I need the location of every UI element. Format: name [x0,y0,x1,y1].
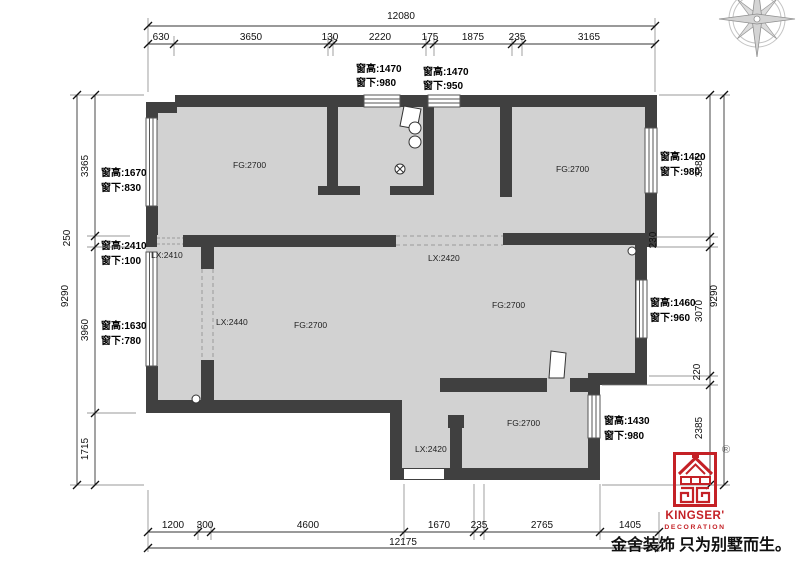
dim-seg: 130 [322,32,339,43]
window-label: 窗高:1670 [101,166,147,179]
room-height-label: FG:2700 [492,300,525,310]
window-right-3 [588,395,600,438]
dim-seg: 300 [197,520,214,531]
dimension-left: 9290 3365 250 3960 1715 [60,91,144,489]
window-label: 窗高:1430 [604,414,650,427]
window-label: 窗下:780 [101,334,141,347]
wall-opening-beam [157,235,183,247]
dim-seg: 250 [62,229,73,246]
dim-seg: 3070 [694,299,705,322]
beam-label: LX:2420 [428,253,460,263]
window-label: 窗下:950 [423,79,463,92]
dim-seg: 230 [648,231,659,248]
room-height-label: FG:2700 [507,418,540,428]
window-label: 窗高:1460 [650,296,696,309]
brand-sub: DECORATION [664,524,725,531]
dim-seg: 1875 [462,32,485,43]
dim-total-left: 9290 [60,284,71,307]
drain-circle [192,395,200,403]
dim-seg: 3385 [694,154,705,177]
window-label: 窗高:1470 [356,62,402,75]
pipe-circle [409,122,421,134]
dim-seg: 1670 [428,520,451,531]
beam-label: LX:2420 [415,444,447,454]
window-label: 窗高:1470 [423,65,469,78]
window-left-1 [146,118,157,206]
beam-label: LX:2410 [151,250,183,260]
floor-drain-icon [395,164,405,174]
brand-tagline: 金舍装饰 只为别墅而生。 [610,535,791,554]
window-label: 窗下:100 [101,254,141,267]
pipe-circle [409,136,421,148]
dim-total-top: 12080 [387,11,415,22]
dim-seg: 1715 [80,437,91,460]
dim-seg: 235 [471,520,488,531]
room-height-label: FG:2700 [294,320,327,330]
window-right-1 [645,128,657,193]
registered-mark: ® [722,444,730,456]
window-top-2 [428,95,460,107]
door-leaf-bedroom [549,351,566,378]
opening-bottom [404,469,444,479]
dim-seg: 3960 [80,318,91,341]
dim-seg: 1405 [619,520,642,531]
dim-seg: 3365 [80,154,91,177]
dim-seg: 3650 [240,32,263,43]
window-label: 窗下:980 [356,76,396,89]
dim-total-right: 9290 [709,284,720,307]
dim-seg: 175 [422,32,439,43]
window-label: 窗下:960 [650,311,690,324]
dim-seg: 2385 [694,416,705,439]
dim-seg: 220 [692,363,703,380]
drain-circle [628,247,636,255]
dim-seg: 2220 [369,32,392,43]
dim-seg: 1200 [162,520,185,531]
dim-seg: 2765 [531,520,554,531]
floor-plan-sheet: FG:2700 FG:2700 FG:2700 FG:2700 FG:2700 … [0,0,800,575]
window-left-2 [146,252,157,366]
window-top-1 [364,95,400,107]
dimension-bottom: 1200 300 4600 1670 235 2765 1405 12175 [144,484,663,552]
window-label: 窗高:1630 [101,319,147,332]
compass-icon [717,0,796,59]
window-label: 窗下:830 [101,181,141,194]
window-label: 窗高:2410 [101,239,147,252]
dim-seg: 235 [509,32,526,43]
beam-label: LX:2440 [216,317,248,327]
window-label: 窗下:980 [604,429,644,442]
dim-total-bottom: 12175 [389,537,417,548]
dim-seg: 630 [153,32,170,43]
room-height-label: FG:2700 [233,160,266,170]
dim-seg: 4600 [297,520,320,531]
dimension-top: 12080 630 3650 130 2220 175 1875 235 316… [144,11,659,92]
dim-seg: 3165 [578,32,601,43]
room-height-label: FG:2700 [556,164,589,174]
kingser-logo: ® KINGSER' DECORATION [664,444,730,531]
window-right-2 [636,280,647,338]
floor-plan-drawing: FG:2700 FG:2700 FG:2700 FG:2700 FG:2700 … [0,0,800,575]
brand-name: KINGSER' [665,510,724,522]
